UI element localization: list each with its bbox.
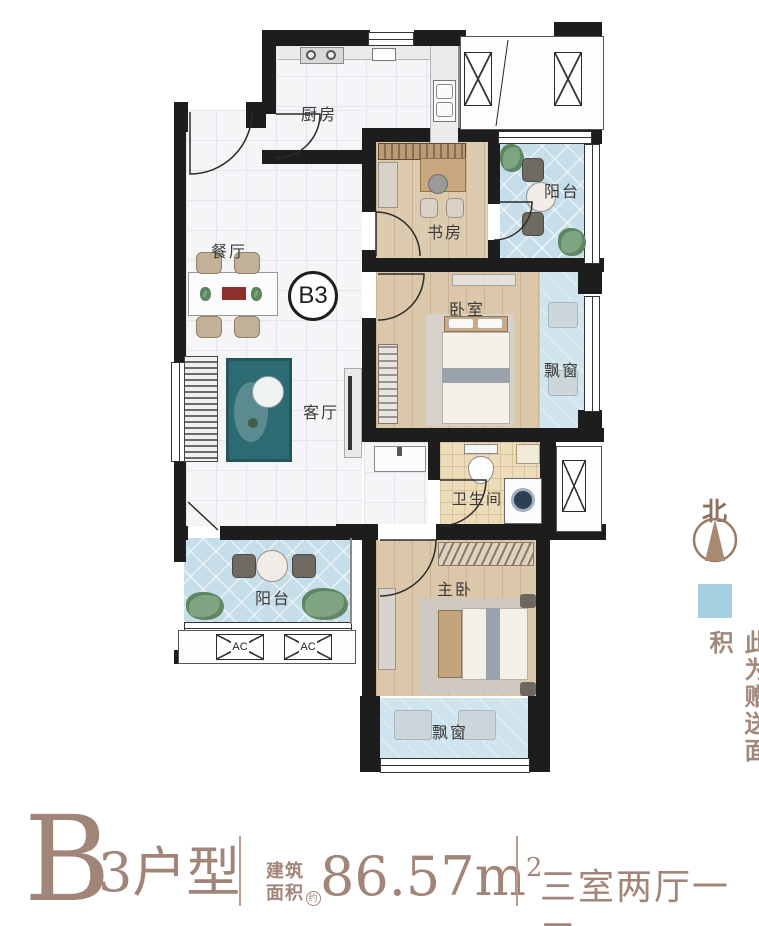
- unit-badge: B3: [288, 271, 338, 321]
- balcony-bottom-chair-2: [292, 554, 316, 578]
- bay-window-right-label: 飘窗: [544, 357, 580, 381]
- kitchen-sink-basin-top: [436, 84, 453, 99]
- ac-box-2-label: AC: [299, 641, 316, 653]
- tv: [348, 376, 352, 450]
- wall-kitchen-left-pillar: [262, 150, 276, 164]
- bay-window-right-floor: [540, 272, 584, 428]
- washing-machine-drum: [511, 488, 535, 512]
- gift-area-swatch: [698, 584, 732, 618]
- balcony-right-thin-line: [350, 538, 352, 624]
- balcony-top-plant-1: [500, 144, 524, 172]
- flue-box-top-right: [554, 52, 582, 106]
- dining-runner: [222, 287, 246, 300]
- master-nightstand-2: [520, 682, 536, 696]
- sofa: [184, 356, 218, 462]
- wall-master-right: [536, 540, 550, 700]
- footer-area-approx: 约: [306, 891, 321, 906]
- bay-right-glazing: [584, 296, 600, 412]
- wall-kitchen-top-right: [414, 30, 466, 46]
- dining-plant-1: [200, 287, 211, 301]
- wall-study-balcony-top: [488, 142, 500, 204]
- cutting-board: [372, 48, 396, 61]
- dining-chair-3: [196, 316, 222, 338]
- study-guest-chair-1: [420, 198, 438, 218]
- toilet-tank: [464, 444, 498, 454]
- wall-kitchen-bottom: [276, 150, 368, 164]
- footer-area-number: 86.57: [320, 845, 475, 908]
- coffee-table: [252, 376, 284, 408]
- ac-box-2: AC: [284, 634, 332, 660]
- wall-topright-cap: [554, 22, 602, 36]
- bay-right-cushion-1: [548, 302, 578, 328]
- hall-washbasin-faucet: [397, 447, 402, 456]
- wall-living-balcony-left-pillar: [174, 526, 188, 540]
- balcony-top-rail: [498, 131, 592, 144]
- floorplan-page: AC AC: [0, 0, 759, 926]
- flue-box-top-left: [464, 52, 492, 106]
- stove-burner-right: [326, 50, 336, 60]
- wall-right-bracket-low: [578, 410, 602, 434]
- master-blanket: [486, 608, 500, 680]
- wall-bathroom-left: [428, 442, 440, 480]
- dining-plant-2: [251, 287, 262, 301]
- ac-box-1: AC: [216, 634, 264, 660]
- footer-area-label-bottom: 面积约: [266, 884, 321, 906]
- dining-chair-4: [234, 316, 260, 338]
- kitchen-top-window: [368, 32, 414, 46]
- wall-bedroom-bottom: [362, 428, 604, 442]
- bedroom-label: 卧室: [449, 296, 485, 320]
- coffee-table-plant: [248, 418, 258, 428]
- balcony-bottom-label: 阳台: [255, 585, 291, 609]
- balcony-bottom-table: [256, 550, 288, 582]
- wall-left-upper: [174, 132, 186, 362]
- wall-entry-left-pillar: [174, 102, 188, 132]
- bathroom-corner-shelf: [516, 444, 540, 464]
- wall-study-balcony-pillar: [488, 240, 500, 260]
- study-desk-chair: [428, 174, 448, 194]
- bedroom-wardrobe: [378, 344, 398, 424]
- balcony-bottom-plant-1: [186, 592, 224, 620]
- bay-bottom-cushion-1: [394, 710, 432, 740]
- bay-bottom-glazing: [380, 758, 530, 773]
- flue-box-bathroom: [562, 460, 586, 512]
- balcony-bottom-chair-1: [232, 554, 256, 578]
- master-cabinet: [378, 588, 396, 670]
- master-wardrobe: [438, 542, 534, 566]
- footer-area-label-top: 建筑: [266, 862, 304, 880]
- ac-box-1-label: AC: [231, 641, 248, 653]
- footer-divider-2: [516, 836, 518, 906]
- balcony-top-glazing: [584, 144, 600, 264]
- master-headboard: [438, 610, 462, 678]
- bay-window-bottom-label: 飘窗: [432, 719, 468, 743]
- wall-study-left-top: [362, 128, 376, 212]
- master-nightstand-1: [520, 594, 536, 608]
- wall-bedroom-top: [362, 258, 604, 272]
- wall-kitchen-top-left: [262, 30, 370, 46]
- wall-bedroom-left: [362, 318, 376, 428]
- wall-living-balcony: [220, 526, 364, 540]
- bedroom-dresser: [452, 274, 516, 286]
- balcony-top-label: 阳台: [544, 178, 580, 202]
- wall-left-lower: [174, 460, 186, 562]
- wall-right-bracket-mid: [578, 262, 602, 294]
- balcony-top-chair-2: [522, 212, 544, 236]
- wall-baywin-bottom-left-cap: [360, 696, 380, 772]
- wall-master-left: [362, 540, 376, 700]
- study-guest-chair-2: [446, 198, 464, 218]
- stove-burner-left: [306, 50, 316, 60]
- study-cabinet: [378, 162, 398, 208]
- bedroom-blanket: [442, 368, 510, 383]
- study-label: 书房: [427, 219, 463, 243]
- footer-area-label-bottom-text: 面积: [266, 883, 304, 903]
- wall-baywin-bottom-right-cap: [528, 696, 550, 772]
- wall-bathroom-right: [540, 442, 556, 530]
- balcony-top-plant-2: [558, 228, 586, 256]
- footer-area-unit: m: [475, 845, 526, 908]
- kitchen-label: 厨房: [301, 101, 337, 125]
- kitchen-sink-basin-bottom: [436, 102, 453, 117]
- wall-kitchen-left: [262, 46, 276, 114]
- bathroom-label: 卫生间: [452, 488, 503, 509]
- footer-area-value: 86.57m2: [320, 850, 542, 904]
- footer-divider-1: [239, 836, 241, 906]
- balcony-top-chair-1: [522, 158, 544, 182]
- footer-unit-suffix: 3户型: [98, 846, 240, 900]
- north-label: 北: [702, 492, 727, 528]
- dining-label: 餐厅: [211, 238, 247, 262]
- kitchen-right-thin-line: [458, 46, 460, 128]
- tv-console: [344, 368, 362, 458]
- footer-layout-text: 三室两厅一卫: [540, 858, 759, 926]
- balcony-bottom-plant-2: [302, 588, 348, 620]
- master-bedroom-label: 主卧: [437, 576, 473, 600]
- living-label: 客厅: [303, 399, 339, 423]
- gift-area-text: 此为赠送面积: [701, 630, 759, 790]
